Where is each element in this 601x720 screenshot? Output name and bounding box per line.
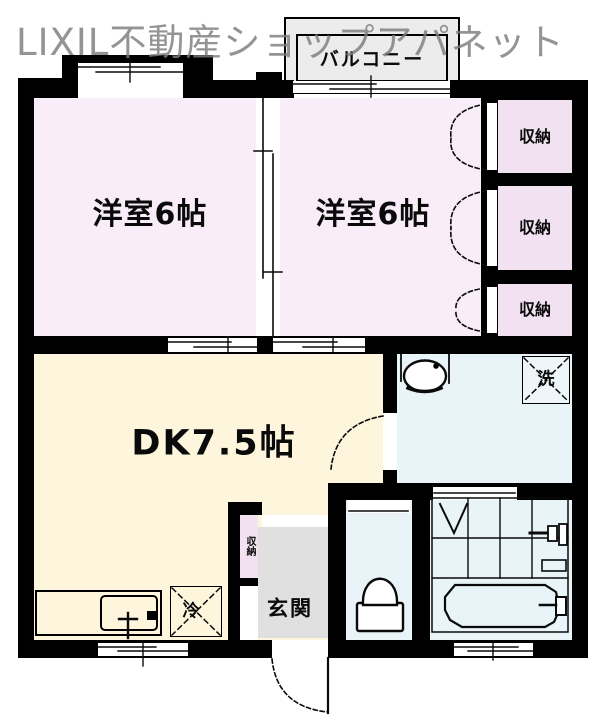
wall-toilet-left [328, 500, 346, 640]
window-bath [454, 643, 533, 656]
entrance-door-opening [272, 640, 328, 658]
door-bath [433, 487, 517, 500]
entrance-door-arc [272, 659, 328, 712]
window-balcony [293, 81, 450, 93]
wall-hallcloset-left [228, 502, 240, 640]
bedroom-right-label: 洋室6帖 [316, 200, 431, 230]
wall-toilet-bath [412, 500, 430, 640]
floorplan-canvas: バルコニー 洋室6帖 洋室6帖 DK7.5帖 収納 収納 収納 収納 玄関 洗 … [0, 0, 601, 720]
wall-top-c [280, 80, 294, 98]
bath-floor [430, 500, 572, 640]
entrance-floor [258, 527, 328, 638]
kitchen-sink-notch [147, 611, 156, 620]
wall-hallcloset-top [228, 502, 262, 515]
entrance-step [262, 515, 328, 527]
closet-3-door [486, 287, 498, 333]
wall-left [18, 78, 34, 658]
dk-label: DK7.5帖 [131, 427, 296, 462]
door-opening-washroom [383, 413, 397, 470]
toilet-floor [346, 500, 412, 640]
closet-3-label: 収納 [519, 302, 551, 318]
closet-1-door [486, 103, 498, 170]
closet-2-label: 収納 [519, 220, 551, 236]
entrance-label: 玄関 [267, 599, 313, 620]
room-partition-channel [256, 98, 282, 336]
washing-machine-label: 洗 [538, 372, 555, 389]
door-toilet [348, 500, 410, 513]
closet-2-door [486, 190, 498, 266]
slidingdoor-left-dk [168, 338, 257, 352]
wall-partition-nub [256, 72, 282, 98]
refrigerator-label: 冷 [183, 604, 200, 621]
bedroom-left-label: 洋室6帖 [93, 200, 208, 230]
hall-closet-label: 収納 [244, 536, 254, 556]
closet-1-label: 収納 [519, 129, 551, 145]
watermark-text: LIXIL不動産ショップアパネット [16, 12, 565, 66]
slidingdoor-right-dk [273, 338, 365, 352]
hall-niche [240, 586, 258, 640]
window-kitchen [98, 643, 188, 656]
